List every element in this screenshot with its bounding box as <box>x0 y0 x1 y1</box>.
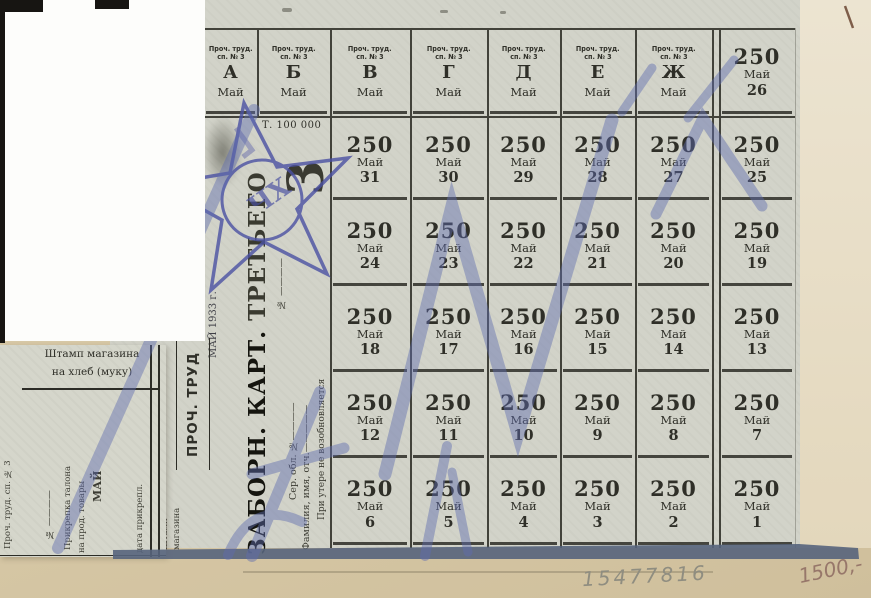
header-coupon-Г: Проч. труд.сп. № 3ГМай <box>410 28 487 117</box>
coupon-ration: 250 <box>500 220 547 241</box>
cell-rule <box>413 111 484 114</box>
coupon-ration: 250 <box>347 220 394 241</box>
stub-talon-line2: на прод. товары <box>77 403 89 553</box>
coupon-day: 4 <box>518 515 528 531</box>
coupon-cell: 250Май7 <box>719 375 795 461</box>
coupon-day: 17 <box>438 342 458 358</box>
coupon-cell: 250Май9 <box>560 375 635 461</box>
coupon-letter: Д <box>515 61 531 84</box>
paper-speck <box>500 11 506 14</box>
coupon-month: Май <box>435 499 461 515</box>
coupon-ration: 250 <box>734 220 781 241</box>
coupon-month: Май <box>744 413 770 429</box>
coupon-day: 16 <box>513 342 533 358</box>
coupon-small-header: сп. № 3 <box>435 53 462 61</box>
cell-rule <box>563 197 632 200</box>
cell-rule <box>563 283 632 286</box>
photo-black-mark <box>95 0 129 9</box>
coupon-ration: 250 <box>734 46 781 67</box>
coupon-small-header: Проч. труд. <box>209 45 253 53</box>
cell-rule <box>722 542 792 545</box>
coupon-ration: 250 <box>347 306 394 327</box>
coupon-cell: 250Май5 <box>410 461 487 548</box>
coupon-month: Май <box>510 241 536 257</box>
coupon-day: 29 <box>513 170 533 186</box>
coupon-day: 25 <box>747 170 767 186</box>
coupon-small-header: Проч. труд. <box>427 45 471 53</box>
coupon-month: Май <box>357 327 383 343</box>
header-coupon-В: Проч. труд.сп. № 3ВМай <box>330 28 410 117</box>
coupon-month: Май <box>744 67 770 83</box>
cell-rule <box>638 197 709 200</box>
coupon-month: Май <box>584 499 610 515</box>
coupon-small-header: сп. № 3 <box>280 53 307 61</box>
coupon-cell: 250Май30 <box>410 117 487 203</box>
stub-number-line: № ———— <box>45 417 58 539</box>
coupon-ration: 250 <box>734 306 781 327</box>
coupon-ration: 250 <box>650 392 697 413</box>
coupon-month: Май <box>584 155 610 171</box>
coupon-ration: 250 <box>425 478 472 499</box>
coupon-month: Май <box>435 85 461 101</box>
coupon-ration: 250 <box>425 220 472 241</box>
coupon-month: Май <box>435 241 461 257</box>
coupon-month: Май <box>357 155 383 171</box>
stub-border <box>158 345 160 557</box>
stub-header-line2: на хлеб (муку) <box>30 366 154 378</box>
coupon-ration: 250 <box>574 134 621 155</box>
header-coupon-Б: Проч. труд.сп. № 3БМай <box>257 28 330 117</box>
cell-rule <box>206 111 255 114</box>
coupon-day: 30 <box>438 170 458 186</box>
coupon-cell: 250Май8 <box>635 375 712 461</box>
coupon-day: 19 <box>747 256 767 272</box>
stub-border <box>0 555 166 557</box>
coupon-day: 23 <box>438 256 458 272</box>
coupon-day: 8 <box>668 428 678 444</box>
cell-rule <box>333 111 407 114</box>
coupon-ration: 250 <box>347 134 394 155</box>
cell-rule <box>490 197 557 200</box>
coupon-month: Май <box>660 499 686 515</box>
card-title-part2: ТРЕТЬЕГО <box>244 171 271 330</box>
coupon-cell: 250Май10 <box>487 375 560 461</box>
cell-rule <box>490 542 557 545</box>
cell-rule <box>333 542 407 545</box>
header-coupon-Е: Проч. труд.сп. № 3ЕМай <box>560 28 635 117</box>
coupon-letter: В <box>362 61 377 84</box>
coupon-ration: 250 <box>500 392 547 413</box>
cell-rule <box>260 111 327 114</box>
coupon-cell: 250Май22 <box>487 203 560 289</box>
grid-line <box>795 28 796 548</box>
cell-rule <box>490 283 557 286</box>
coupon-day: 2 <box>668 515 678 531</box>
coupon-cell: 250Май3 <box>560 461 635 548</box>
coupon-cell: 250Май1 <box>719 461 795 548</box>
coupon-letter: Б <box>286 61 301 84</box>
proch-trud-label: ПРОЧ. ТРУД <box>185 352 201 457</box>
coupon-small-header: сп. № 3 <box>356 53 383 61</box>
coupon-ration: 250 <box>650 134 697 155</box>
coupon-day: 28 <box>587 170 607 186</box>
cell-rule <box>722 111 792 114</box>
coupon-ration: 250 <box>734 134 781 155</box>
cell-rule <box>333 369 407 372</box>
cell-rule <box>413 455 484 458</box>
paper-speck <box>440 10 448 13</box>
coupon-day: 11 <box>438 428 458 444</box>
coupon-month: Май <box>357 499 383 515</box>
cell-rule <box>722 369 792 372</box>
coupon-day: 14 <box>663 342 683 358</box>
coupon-letter: Ж <box>662 61 686 84</box>
coupon-ration: 250 <box>500 306 547 327</box>
coupon-cell: 250Май2 <box>635 461 712 548</box>
coupon-cell: 250Май29 <box>487 117 560 203</box>
coupon-month: Май <box>510 85 536 101</box>
coupon-month: Май <box>435 155 461 171</box>
coupon-ration: 250 <box>650 306 697 327</box>
cell-rule <box>413 542 484 545</box>
coupon-cell: 250Май16 <box>487 289 560 375</box>
coupon-day: 31 <box>360 170 380 186</box>
coupon-month: Май <box>357 85 383 101</box>
cell-rule <box>722 283 792 286</box>
warning-line: При утере не возобновляется <box>317 210 331 520</box>
price-note: 1500,- <box>796 548 871 588</box>
cell-rule <box>722 455 792 458</box>
coupon-month: Май <box>744 241 770 257</box>
name-line: Фамилия, имя, отч.————— <box>301 260 315 550</box>
coupon-cell: 250Май14 <box>635 289 712 375</box>
print-run: Т. 100 000 <box>262 120 344 131</box>
coupon-day: 6 <box>365 515 375 531</box>
serial-number: 15477816 <box>581 559 742 591</box>
coupon-cell: 250Май28 <box>560 117 635 203</box>
photo-black-mark <box>0 0 43 12</box>
grid-line <box>712 28 714 548</box>
coupon-day: 3 <box>592 515 602 531</box>
coupon-month: Май <box>510 499 536 515</box>
coupon-day: 1 <box>752 515 762 531</box>
coupon-cell: 250Май23 <box>410 203 487 289</box>
coupon-ration: 250 <box>574 220 621 241</box>
coupon-month: Май <box>660 413 686 429</box>
card-title-part1: ЗАБОРН. КАРТ. <box>244 330 271 555</box>
shop-stamp-stub: Штамп магазина на хлеб (муку) Проч. труд… <box>0 345 166 557</box>
cell-rule <box>563 369 632 372</box>
coupon-letter: А <box>223 61 238 84</box>
coupon-small-header: Проч. труд. <box>652 45 696 53</box>
coupon-cell: 250Май21 <box>560 203 635 289</box>
cell-rule <box>413 197 484 200</box>
cell-rule <box>333 197 407 200</box>
cell-rule <box>638 369 709 372</box>
coupon-cell: 250Май20 <box>635 203 712 289</box>
coupon-day: 27 <box>663 170 683 186</box>
stub-rule <box>22 388 160 390</box>
coupon-small-header: Проч. труд. <box>576 45 620 53</box>
coupon-cell: 250Май24 <box>330 203 410 289</box>
coupon-day: 24 <box>360 256 380 272</box>
coupon-cell: 250Май6 <box>330 461 410 548</box>
coupon-month: Май <box>510 413 536 429</box>
coupon-cell: 250Май15 <box>560 289 635 375</box>
coupon-cell: 250Май25 <box>719 117 795 203</box>
coupon-day: 5 <box>443 515 453 531</box>
stub-date-line: дата прикрепл. <box>135 425 147 553</box>
coupon-cell: 250Май4 <box>487 461 560 548</box>
cell-rule <box>490 369 557 372</box>
date-stamp-text: МАЙ 1933 г. <box>208 266 225 358</box>
card-title: ЗАБОРН. КАРТ. ТРЕТЬЕГО <box>238 145 278 555</box>
coupon-ration: 250 <box>650 478 697 499</box>
coupon-day: 15 <box>587 342 607 358</box>
coupon-month: Май <box>584 241 610 257</box>
coupon-small-header: сп. № 3 <box>584 53 611 61</box>
coupon-month: Май <box>217 85 243 101</box>
shop-stamp-label-2: магазина <box>172 450 185 550</box>
coupon-ration: 250 <box>347 392 394 413</box>
coupon-ration: 250 <box>650 220 697 241</box>
coupon-day: 12 <box>360 428 380 444</box>
coupon-month: Май <box>660 241 686 257</box>
coupon-month: Май <box>280 85 306 101</box>
coupon-ration: 250 <box>425 134 472 155</box>
coupon-cell: 250Май19 <box>719 203 795 289</box>
coupon-small-header: сп. № 3 <box>510 53 537 61</box>
coupon-ration: 250 <box>425 306 472 327</box>
stub-left-vertical: Проч. труд. сп. № 3 <box>3 397 20 549</box>
photo-of-ration-card: Проч. труд.сп. № 3АМайПроч. труд.сп. № 3… <box>0 0 871 598</box>
coupon-letter: Е <box>591 61 605 84</box>
coupon-small-header: сп. № 3 <box>660 53 687 61</box>
coupon-letter: Г <box>442 61 454 84</box>
stub-header-line1: Штамп магазина <box>26 348 158 360</box>
coupon-ration: 250 <box>574 306 621 327</box>
cell-rule <box>563 111 632 114</box>
stub-talon-month: МАЙ <box>91 440 105 502</box>
cell-rule <box>638 542 709 545</box>
redaction-box <box>0 0 205 341</box>
coupon-ration: 250 <box>574 392 621 413</box>
coupon-day: 10 <box>513 428 533 444</box>
header-coupon-А: Проч. труд.сп. № 3АМай <box>204 28 257 117</box>
coupon-month: Май <box>510 155 536 171</box>
coupon-ration: 250 <box>347 478 394 499</box>
coupon-small-header: Проч. труд. <box>348 45 392 53</box>
photo-black-mark <box>0 10 5 343</box>
coupon-month: Май <box>435 327 461 343</box>
coupon-month: Май <box>744 499 770 515</box>
coupon-day: 7 <box>752 428 762 444</box>
coupon-small-header: Проч. труд. <box>272 45 316 53</box>
header-coupon-Д: Проч. труд.сп. № 3ДМай <box>487 28 560 117</box>
coupon-month: Май <box>357 241 383 257</box>
coupon-small-header: Проч. труд. <box>502 45 546 53</box>
coupon-cell: 250Май13 <box>719 289 795 375</box>
header-coupon-day: 250Май26 <box>719 28 795 117</box>
coupon-ration: 250 <box>734 392 781 413</box>
cell-rule <box>490 111 557 114</box>
coupon-cell: 250Май18 <box>330 289 410 375</box>
coupon-month: Май <box>584 85 610 101</box>
coupon-month: Май <box>660 85 686 101</box>
coupon-ration: 250 <box>500 134 547 155</box>
coupon-small-header: сп. № 3 <box>217 53 244 61</box>
paper-speck <box>282 8 292 12</box>
cell-rule <box>722 197 792 200</box>
coupon-ration: 250 <box>500 478 547 499</box>
coupon-day: 22 <box>513 256 533 272</box>
background-paper-right <box>800 0 871 548</box>
coupon-day: 13 <box>747 342 767 358</box>
cell-rule <box>638 283 709 286</box>
cell-rule <box>490 455 557 458</box>
cell-rule <box>333 455 407 458</box>
coupon-month: Май <box>584 327 610 343</box>
coupon-day: 20 <box>663 256 683 272</box>
cell-rule <box>638 111 709 114</box>
coupon-month: Май <box>510 327 536 343</box>
coupon-ration: 250 <box>574 478 621 499</box>
coupon-month: Май <box>744 327 770 343</box>
cell-rule <box>413 369 484 372</box>
coupon-cell: 250Май27 <box>635 117 712 203</box>
stub-talon-line1: Прикрепка талона <box>63 400 75 550</box>
coupon-ration: 250 <box>425 392 472 413</box>
coupon-month: Май <box>660 155 686 171</box>
coupon-month: Май <box>660 327 686 343</box>
series-line: Сер. обл. №———— <box>288 250 302 500</box>
coupon-cell: 250Май12 <box>330 375 410 461</box>
ink-smudge <box>203 116 243 188</box>
stub-border <box>150 345 152 557</box>
coupon-day: 9 <box>592 428 602 444</box>
coupon-day: 18 <box>360 342 380 358</box>
coupon-cell: 250Май11 <box>410 375 487 461</box>
coupon-month: Май <box>584 413 610 429</box>
coupon-cell: 250Май17 <box>410 289 487 375</box>
coupon-month: Май <box>357 413 383 429</box>
header-coupon-Ж: Проч. труд.сп. № 3ЖМай <box>635 28 712 117</box>
cell-rule <box>333 283 407 286</box>
coupon-ration: 250 <box>734 478 781 499</box>
coupon-month: Май <box>744 155 770 171</box>
cell-rule <box>638 455 709 458</box>
cell-rule <box>563 455 632 458</box>
cell-rule <box>413 283 484 286</box>
coupon-month: Май <box>435 413 461 429</box>
coupon-day: 21 <box>587 256 607 272</box>
cell-rule <box>563 542 632 545</box>
coupon-day: 26 <box>747 83 767 99</box>
